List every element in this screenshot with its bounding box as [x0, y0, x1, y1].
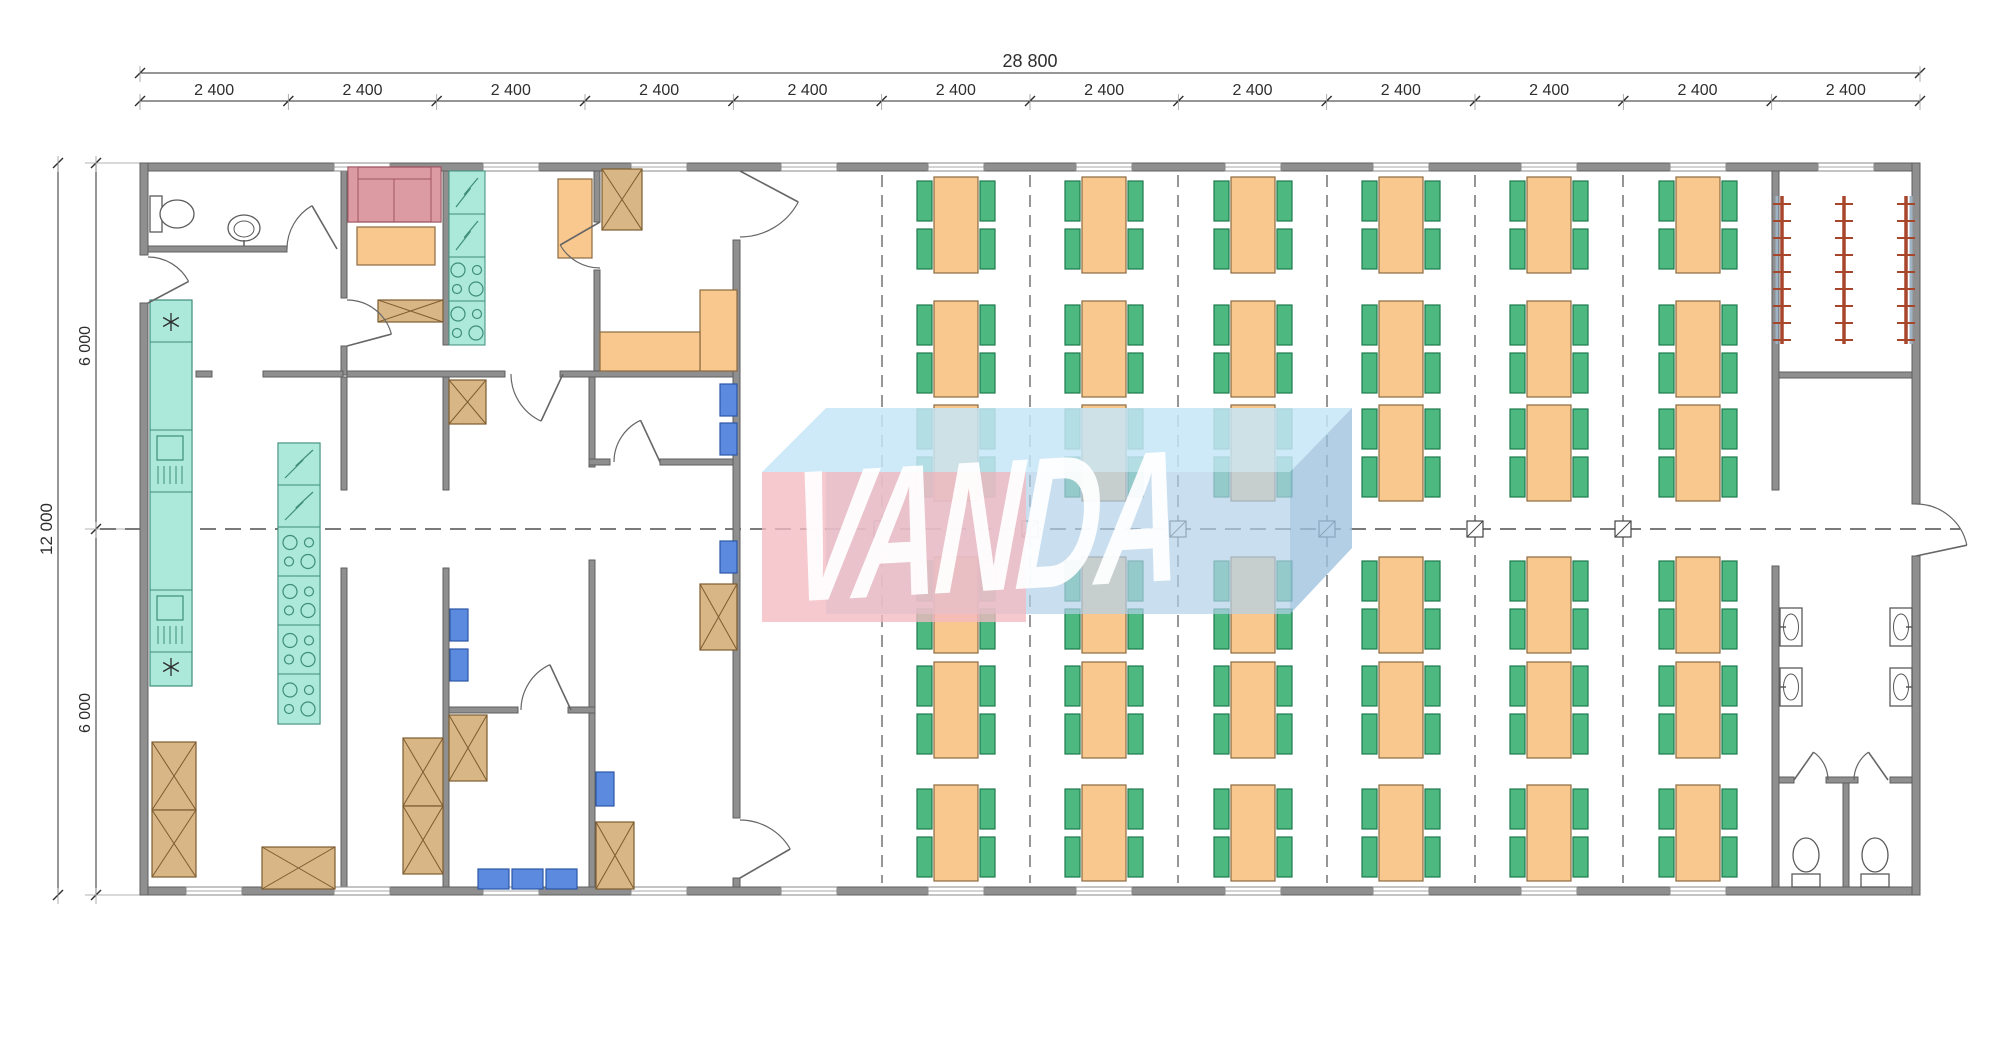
- dining-chair: [1128, 666, 1143, 706]
- dining-chair: [980, 837, 995, 877]
- dining-chair: [1659, 561, 1674, 601]
- dining-chair: [1573, 457, 1588, 497]
- dining-chair: [1573, 714, 1588, 754]
- dining-table: [1527, 177, 1571, 273]
- dining-table: [1527, 662, 1571, 758]
- bay-dimension-label: 2 400: [787, 82, 827, 99]
- dining-table: [1231, 557, 1275, 653]
- wall-stall-divider: [1843, 783, 1849, 887]
- wall-store-east: [443, 377, 449, 490]
- dining-table: [1082, 662, 1126, 758]
- dining-chair: [1214, 837, 1229, 877]
- door-dining-southwest-leaf: [740, 849, 790, 878]
- dining-chair: [1573, 561, 1588, 601]
- dining-chair: [1510, 229, 1525, 269]
- dining-chair: [1510, 789, 1525, 829]
- dining-chair: [917, 305, 932, 345]
- dining-chair: [1425, 609, 1440, 649]
- outer-wall-left: [140, 303, 148, 895]
- dining-table: [1231, 301, 1275, 397]
- dining-chair: [1510, 837, 1525, 877]
- dining-chair: [1362, 181, 1377, 221]
- dining-chair: [1277, 457, 1292, 497]
- dining-chair: [1362, 666, 1377, 706]
- dining-chair: [1659, 229, 1674, 269]
- bay-dimension-label: 2 400: [1232, 82, 1272, 99]
- dining-chair: [1065, 353, 1080, 393]
- dining-chair: [980, 229, 995, 269]
- dining-chair: [1425, 409, 1440, 449]
- dining-chair: [1573, 409, 1588, 449]
- dining-table: [934, 557, 978, 653]
- dining-chair: [1128, 181, 1143, 221]
- dining-chair: [1573, 305, 1588, 345]
- dining-chair: [1425, 789, 1440, 829]
- dining-table: [1676, 557, 1720, 653]
- dining-chair: [1214, 666, 1229, 706]
- dining-chair: [1573, 789, 1588, 829]
- wall-cloakroom-south: [1779, 372, 1912, 378]
- dining-chair: [1128, 409, 1143, 449]
- dining-chair: [917, 609, 932, 649]
- wall-room-south: [660, 459, 737, 465]
- dining-chair: [1425, 457, 1440, 497]
- wall-corridor-east: [589, 377, 595, 467]
- bay-dimension-label: 2 400: [936, 82, 976, 99]
- stove-unit: [278, 674, 320, 724]
- wall-vestibule-east: [341, 171, 347, 298]
- dining-table: [1082, 557, 1126, 653]
- dining-chair: [917, 837, 932, 877]
- dining-chair: [1510, 561, 1525, 601]
- bench-seat: [720, 384, 737, 416]
- dining-chair: [980, 609, 995, 649]
- bench-seat: [546, 869, 577, 889]
- bay-dimension-label: 2 400: [1677, 82, 1717, 99]
- dining-chair: [1128, 229, 1143, 269]
- dining-chair: [917, 789, 932, 829]
- dining-chair: [1425, 181, 1440, 221]
- wall-dining-west: [733, 878, 740, 887]
- dining-table: [934, 405, 978, 501]
- dining-chair: [1510, 181, 1525, 221]
- door-wc-stall-left-leaf: [1794, 752, 1814, 780]
- dining-chair: [1722, 353, 1737, 393]
- dining-chair: [1722, 837, 1737, 877]
- dining-chair: [1425, 666, 1440, 706]
- dining-table: [1379, 405, 1423, 501]
- dining-chair: [1362, 714, 1377, 754]
- door-room-south-leaf: [550, 665, 571, 710]
- dining-chair: [1214, 305, 1229, 345]
- dining-chair: [1277, 789, 1292, 829]
- dining-chair: [1659, 609, 1674, 649]
- wall-service-mid: [560, 371, 737, 377]
- dining-table: [1082, 405, 1126, 501]
- door-service-mid-arc: [511, 374, 541, 421]
- door-service-mid-leaf: [541, 374, 563, 421]
- dining-chair: [1362, 789, 1377, 829]
- outer-wall-bottom: [140, 887, 1920, 895]
- wall-kitchen-east: [341, 377, 347, 490]
- door-room-south-arc: [521, 665, 550, 710]
- sofa-armrest: [348, 167, 358, 222]
- dining-chair: [1510, 609, 1525, 649]
- dining-chair: [1573, 837, 1588, 877]
- door-dining-northwest-arc: [740, 202, 798, 237]
- door-store-arc: [614, 420, 641, 462]
- dining-chair: [980, 789, 995, 829]
- dining-table: [1082, 301, 1126, 397]
- dining-chair: [1362, 409, 1377, 449]
- dining-chair: [1573, 666, 1588, 706]
- dining-chair: [1214, 229, 1229, 269]
- serving-counter: [600, 332, 700, 371]
- dining-chair: [1277, 229, 1292, 269]
- dining-chair: [1128, 714, 1143, 754]
- dining-table: [934, 177, 978, 273]
- dining-chair: [1659, 666, 1674, 706]
- dining-chair: [1128, 789, 1143, 829]
- dining-chair: [1573, 353, 1588, 393]
- dining-table: [1379, 662, 1423, 758]
- door-dining-southwest-arc: [740, 820, 790, 849]
- dining-chair: [1573, 229, 1588, 269]
- dining-chair: [1277, 837, 1292, 877]
- dining-chair: [917, 229, 932, 269]
- dining-table: [1379, 557, 1423, 653]
- dining-chair: [1510, 714, 1525, 754]
- dining-table: [934, 662, 978, 758]
- wall-service-mid: [347, 371, 505, 377]
- dining-table: [1527, 785, 1571, 881]
- bay-dimension-label: 2 400: [1084, 82, 1124, 99]
- toilet-bowl: [1793, 838, 1819, 872]
- dining-chair: [1722, 561, 1737, 601]
- dining-chair: [1573, 609, 1588, 649]
- door-entrance-right-leaf: [1916, 545, 1967, 556]
- dim-total-width-label: 28 800: [1002, 51, 1057, 71]
- wall-pantry-east: [594, 171, 600, 222]
- dining-chair: [1659, 181, 1674, 221]
- coffee-table: [357, 227, 435, 265]
- wall-room-south: [568, 707, 595, 713]
- toilet-tank: [1792, 874, 1820, 887]
- dining-table: [1676, 785, 1720, 881]
- dining-chair: [1510, 353, 1525, 393]
- dining-chair: [1722, 305, 1737, 345]
- dining-table: [1379, 177, 1423, 273]
- dining-chair: [1425, 837, 1440, 877]
- outer-wall-right: [1912, 163, 1920, 504]
- dining-chair: [1128, 609, 1143, 649]
- wall-lounge-east: [443, 171, 449, 345]
- floor-plan-canvas: 28 8002 4002 4002 4002 4002 4002 4002 40…: [0, 0, 2000, 1041]
- dining-chair: [1214, 353, 1229, 393]
- dining-chair: [1425, 353, 1440, 393]
- dining-chair: [1065, 457, 1080, 497]
- floor-plan-drawing: 28 8002 4002 4002 4002 4002 4002 4002 40…: [0, 0, 2000, 1041]
- dining-chair: [1510, 457, 1525, 497]
- door-store-leaf: [641, 420, 660, 462]
- dining-chair: [1214, 561, 1229, 601]
- bay-dimension-label: 2 400: [1381, 82, 1421, 99]
- dining-chair: [1065, 609, 1080, 649]
- bay-dimension-label: 2 400: [491, 82, 531, 99]
- serving-counter: [700, 290, 737, 371]
- dining-table: [1231, 785, 1275, 881]
- dining-table: [1379, 785, 1423, 881]
- door-vestibule-lounge-leaf: [347, 334, 391, 346]
- toilet-tank: [1861, 874, 1889, 887]
- dining-chair: [1722, 457, 1737, 497]
- dining-table: [934, 301, 978, 397]
- dining-chair: [1362, 837, 1377, 877]
- dining-chair: [1128, 561, 1143, 601]
- dining-table: [1527, 301, 1571, 397]
- dining-chair: [1065, 305, 1080, 345]
- toilet-bowl: [1862, 838, 1888, 872]
- dining-chair: [1362, 457, 1377, 497]
- dining-chair: [1362, 561, 1377, 601]
- bench-seat: [596, 772, 614, 806]
- work-table: [558, 179, 592, 258]
- dining-chair: [917, 457, 932, 497]
- wall-vestibule-south: [196, 371, 212, 377]
- dining-chair: [1510, 305, 1525, 345]
- dining-chair: [1425, 305, 1440, 345]
- stove-unit: [278, 576, 320, 625]
- dining-chair: [1065, 666, 1080, 706]
- dining-chair: [1277, 609, 1292, 649]
- dining-chair: [917, 353, 932, 393]
- dining-table: [1527, 405, 1571, 501]
- door-dining-northwest-leaf: [740, 171, 798, 202]
- dining-chair: [1277, 305, 1292, 345]
- outer-wall-left: [140, 163, 148, 255]
- dining-chair: [1722, 181, 1737, 221]
- dining-chair: [980, 353, 995, 393]
- dining-table: [1082, 177, 1126, 273]
- dining-chair: [1362, 353, 1377, 393]
- dining-chair: [1362, 229, 1377, 269]
- door-wc-stall-right-leaf: [1868, 752, 1888, 780]
- dining-chair: [1065, 789, 1080, 829]
- bay-dimension-label: 2 400: [194, 82, 234, 99]
- dining-chair: [980, 457, 995, 497]
- wall-corridor-east: [589, 560, 595, 887]
- dining-table: [1676, 177, 1720, 273]
- dim-total-height-label: 12 000: [37, 503, 56, 555]
- dining-chair: [980, 666, 995, 706]
- wall-store-east: [443, 568, 449, 887]
- wall-dining-east: [1772, 566, 1779, 887]
- dining-chair: [1722, 229, 1737, 269]
- dining-chair: [1277, 409, 1292, 449]
- dining-chair: [980, 305, 995, 345]
- door-entrance-right-arc: [1916, 504, 1967, 545]
- dining-chair: [1659, 353, 1674, 393]
- dining-chair: [1722, 609, 1737, 649]
- stove-unit: [278, 625, 320, 674]
- wall-kitchen-east: [341, 568, 347, 887]
- dining-chair: [1277, 561, 1292, 601]
- bench-seat: [450, 649, 468, 681]
- dining-chair: [980, 409, 995, 449]
- dining-chair: [1722, 714, 1737, 754]
- dining-chair: [1659, 837, 1674, 877]
- dining-table: [1676, 662, 1720, 758]
- dining-chair: [1277, 181, 1292, 221]
- dining-chair: [917, 666, 932, 706]
- wall-pantry-east: [594, 270, 600, 375]
- dining-chair: [1425, 229, 1440, 269]
- dining-table: [1082, 785, 1126, 881]
- dining-table: [1676, 301, 1720, 397]
- toilet-bowl: [160, 200, 194, 228]
- dining-chair: [1214, 714, 1229, 754]
- bay-dimension-label: 2 400: [342, 82, 382, 99]
- bench-seat: [512, 869, 543, 889]
- dining-chair: [1214, 181, 1229, 221]
- dining-chair: [1659, 305, 1674, 345]
- dining-chair: [980, 714, 995, 754]
- dining-chair: [1065, 561, 1080, 601]
- dining-chair: [1128, 457, 1143, 497]
- wall-stub: [589, 459, 610, 465]
- wall-room-south: [449, 707, 518, 713]
- dining-chair: [1722, 409, 1737, 449]
- bench-seat: [720, 423, 737, 455]
- dining-chair: [1214, 409, 1229, 449]
- dining-chair: [1659, 457, 1674, 497]
- half-dimension-label: 6 000: [77, 693, 94, 733]
- dining-chair: [980, 181, 995, 221]
- dining-chair: [917, 181, 932, 221]
- dining-chair: [1362, 609, 1377, 649]
- wall-washroom-south: [1890, 777, 1912, 783]
- dining-chair: [1425, 714, 1440, 754]
- dining-chair: [1425, 561, 1440, 601]
- dining-table: [1379, 301, 1423, 397]
- bench-seat: [478, 869, 509, 889]
- sink-unit: [150, 430, 192, 492]
- door-wc-stall-right-arc: [1854, 752, 1868, 780]
- dining-chair: [1659, 409, 1674, 449]
- dining-chair: [1277, 353, 1292, 393]
- dining-chair: [917, 561, 932, 601]
- door-wc-leaf: [312, 206, 337, 249]
- outer-wall-right: [1912, 556, 1920, 895]
- half-dimension-label: 6 000: [77, 326, 94, 366]
- door-wc-stall-left-arc: [1814, 752, 1828, 780]
- bay-dimension-label: 2 400: [1529, 82, 1569, 99]
- dining-chair: [1659, 789, 1674, 829]
- dining-chair: [1065, 409, 1080, 449]
- dining-chair: [1277, 714, 1292, 754]
- dining-table: [1231, 405, 1275, 501]
- dining-chair: [1573, 181, 1588, 221]
- dining-table: [1231, 662, 1275, 758]
- bench-seat: [720, 541, 737, 573]
- wall-vestibule-south: [263, 371, 343, 377]
- dining-chair: [1214, 609, 1229, 649]
- bench-seat: [450, 609, 468, 641]
- dining-chair: [1659, 714, 1674, 754]
- dining-chair: [1128, 837, 1143, 877]
- dining-chair: [1722, 666, 1737, 706]
- dining-table: [1527, 557, 1571, 653]
- dining-chair: [1510, 666, 1525, 706]
- dining-chair: [980, 561, 995, 601]
- stove-unit: [278, 527, 320, 576]
- door-wc-arc: [287, 206, 312, 249]
- dining-chair: [917, 409, 932, 449]
- door-entrance-left-arc: [148, 257, 189, 281]
- dining-chair: [1214, 457, 1229, 497]
- bay-dimension-label: 2 400: [1826, 82, 1866, 99]
- dining-chair: [1128, 305, 1143, 345]
- dining-table: [1676, 405, 1720, 501]
- dining-table: [934, 785, 978, 881]
- dining-chair: [1214, 789, 1229, 829]
- dining-table: [1231, 177, 1275, 273]
- dining-chair: [1065, 181, 1080, 221]
- wall-washroom-south: [1779, 777, 1794, 783]
- dining-chair: [1065, 837, 1080, 877]
- sofa-armrest: [431, 167, 441, 222]
- dining-chair: [1277, 666, 1292, 706]
- dining-chair: [1128, 353, 1143, 393]
- dining-chair: [1722, 789, 1737, 829]
- dining-chair: [1362, 305, 1377, 345]
- dining-chair: [1065, 714, 1080, 754]
- bay-dimension-label: 2 400: [639, 82, 679, 99]
- dining-chair: [1510, 409, 1525, 449]
- wall-wc-bottom: [148, 246, 287, 252]
- dining-chair: [1065, 229, 1080, 269]
- sink-unit: [150, 590, 192, 652]
- wall-washroom-south: [1826, 777, 1858, 783]
- dining-chair: [917, 714, 932, 754]
